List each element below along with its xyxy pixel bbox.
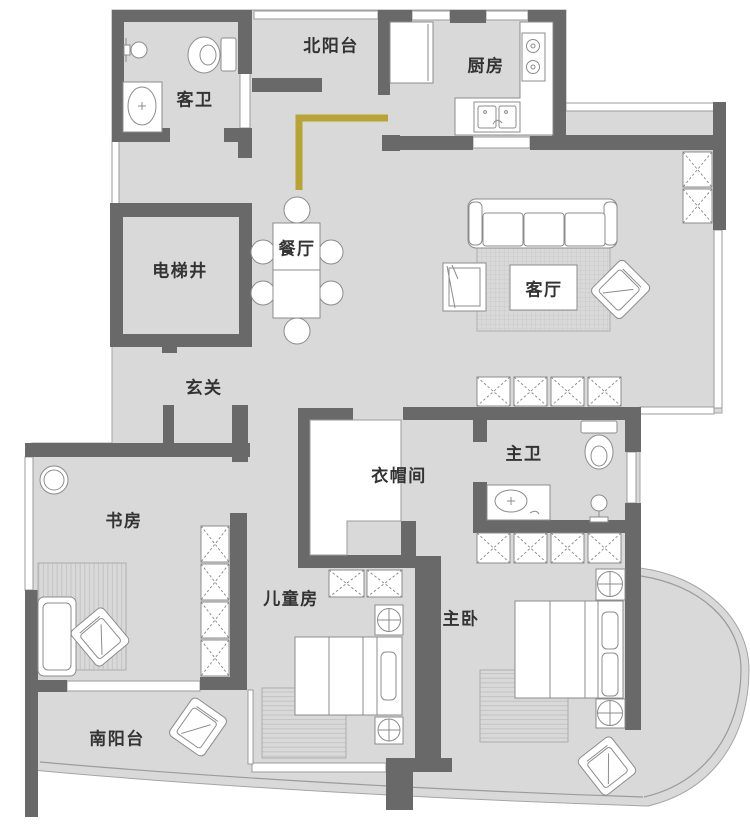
room-label-kitchen: 厨房 xyxy=(468,52,505,77)
window xyxy=(486,11,528,20)
dining-chair xyxy=(284,318,310,344)
wall xyxy=(386,758,452,772)
sink-basin xyxy=(499,106,516,128)
room-label-master-bathroom: 主卫 xyxy=(506,440,543,465)
wall xyxy=(403,407,638,420)
window xyxy=(566,103,714,111)
room-label-guest-bathroom: 客卫 xyxy=(177,86,214,111)
floor-plan-drawing xyxy=(0,0,750,824)
daybed-cushion xyxy=(43,603,71,670)
wall xyxy=(552,10,566,150)
wall xyxy=(200,677,247,690)
living-armchair xyxy=(443,263,486,311)
window xyxy=(252,763,386,772)
pillow xyxy=(602,653,618,696)
window xyxy=(640,407,714,414)
wall xyxy=(252,78,322,92)
wall xyxy=(298,555,403,568)
wall xyxy=(530,136,566,150)
pillow xyxy=(602,612,618,649)
dining-chair xyxy=(251,281,275,305)
wall xyxy=(162,347,177,353)
window xyxy=(67,681,200,691)
floor-plan: 北阳台 厨房 客卫 餐厅 客厅 电梯井 玄关 衣帽间 主卫 书房 儿童房 主卧 … xyxy=(0,0,750,824)
wall xyxy=(239,203,252,347)
fridge xyxy=(390,22,433,83)
wall xyxy=(378,10,390,95)
window xyxy=(412,11,450,20)
room-label-south-balcony: 南阳台 xyxy=(89,725,145,750)
room-label-dining-room: 餐厅 xyxy=(279,235,316,260)
dining-chair xyxy=(319,240,343,264)
shower-base xyxy=(590,517,608,522)
wall xyxy=(382,135,400,151)
sofa-cushion xyxy=(565,213,605,246)
master-bed xyxy=(515,601,623,698)
wall xyxy=(450,10,486,23)
wall xyxy=(25,443,250,457)
wall xyxy=(37,680,67,692)
wall xyxy=(238,10,252,74)
wall xyxy=(566,135,715,150)
toilet-tank xyxy=(221,38,236,71)
wall-faucet-icon xyxy=(124,45,130,55)
room-label-cloakroom: 衣帽间 xyxy=(371,462,427,487)
window xyxy=(112,140,119,204)
window xyxy=(473,137,530,148)
wall-faucet-icon xyxy=(131,42,147,58)
shower-head xyxy=(591,495,607,511)
wall xyxy=(232,405,248,462)
wall xyxy=(625,503,641,730)
dining-chair xyxy=(251,240,275,264)
pillow xyxy=(381,652,396,700)
wall xyxy=(163,405,174,443)
wall xyxy=(112,10,252,22)
children-bed xyxy=(295,637,402,715)
wall xyxy=(386,772,413,810)
room-label-living-room: 客厅 xyxy=(526,276,563,301)
dining-chair xyxy=(319,281,343,305)
dining-chair xyxy=(284,197,310,223)
wall xyxy=(112,10,124,140)
wall xyxy=(415,556,441,768)
wall xyxy=(110,203,123,347)
sofa-arm xyxy=(469,202,482,245)
toilet-bowl-inner xyxy=(591,446,607,466)
wall xyxy=(238,128,252,158)
room-label-elevator-shaft: 电梯井 xyxy=(152,257,208,282)
room-label-study: 书房 xyxy=(106,507,143,532)
window xyxy=(248,690,253,764)
wall xyxy=(230,513,247,690)
sink-basin xyxy=(478,106,496,128)
sofa-cushion xyxy=(524,213,564,246)
wall xyxy=(298,408,310,568)
wall xyxy=(713,102,726,230)
window xyxy=(714,230,722,408)
wall xyxy=(625,407,641,452)
wall xyxy=(400,136,473,150)
room-label-north-balcony: 北阳台 xyxy=(303,32,359,57)
room-label-foyer: 玄关 xyxy=(186,374,223,399)
sofa-cushion xyxy=(483,213,523,246)
wall xyxy=(110,203,252,217)
room-label-master-bedroom: 主卧 xyxy=(443,605,480,630)
sliding-door xyxy=(240,73,250,128)
wall xyxy=(25,590,38,817)
wall xyxy=(401,521,416,568)
wall xyxy=(473,407,487,442)
wall xyxy=(110,334,252,347)
window xyxy=(25,457,33,590)
toilet-bowl-inner xyxy=(200,45,216,65)
window xyxy=(627,452,636,503)
entry-cabinets xyxy=(683,152,712,223)
window xyxy=(254,11,378,19)
room-label-children-room: 儿童房 xyxy=(263,585,319,610)
sofa-arm xyxy=(604,202,617,245)
toilet-tank xyxy=(581,421,617,433)
